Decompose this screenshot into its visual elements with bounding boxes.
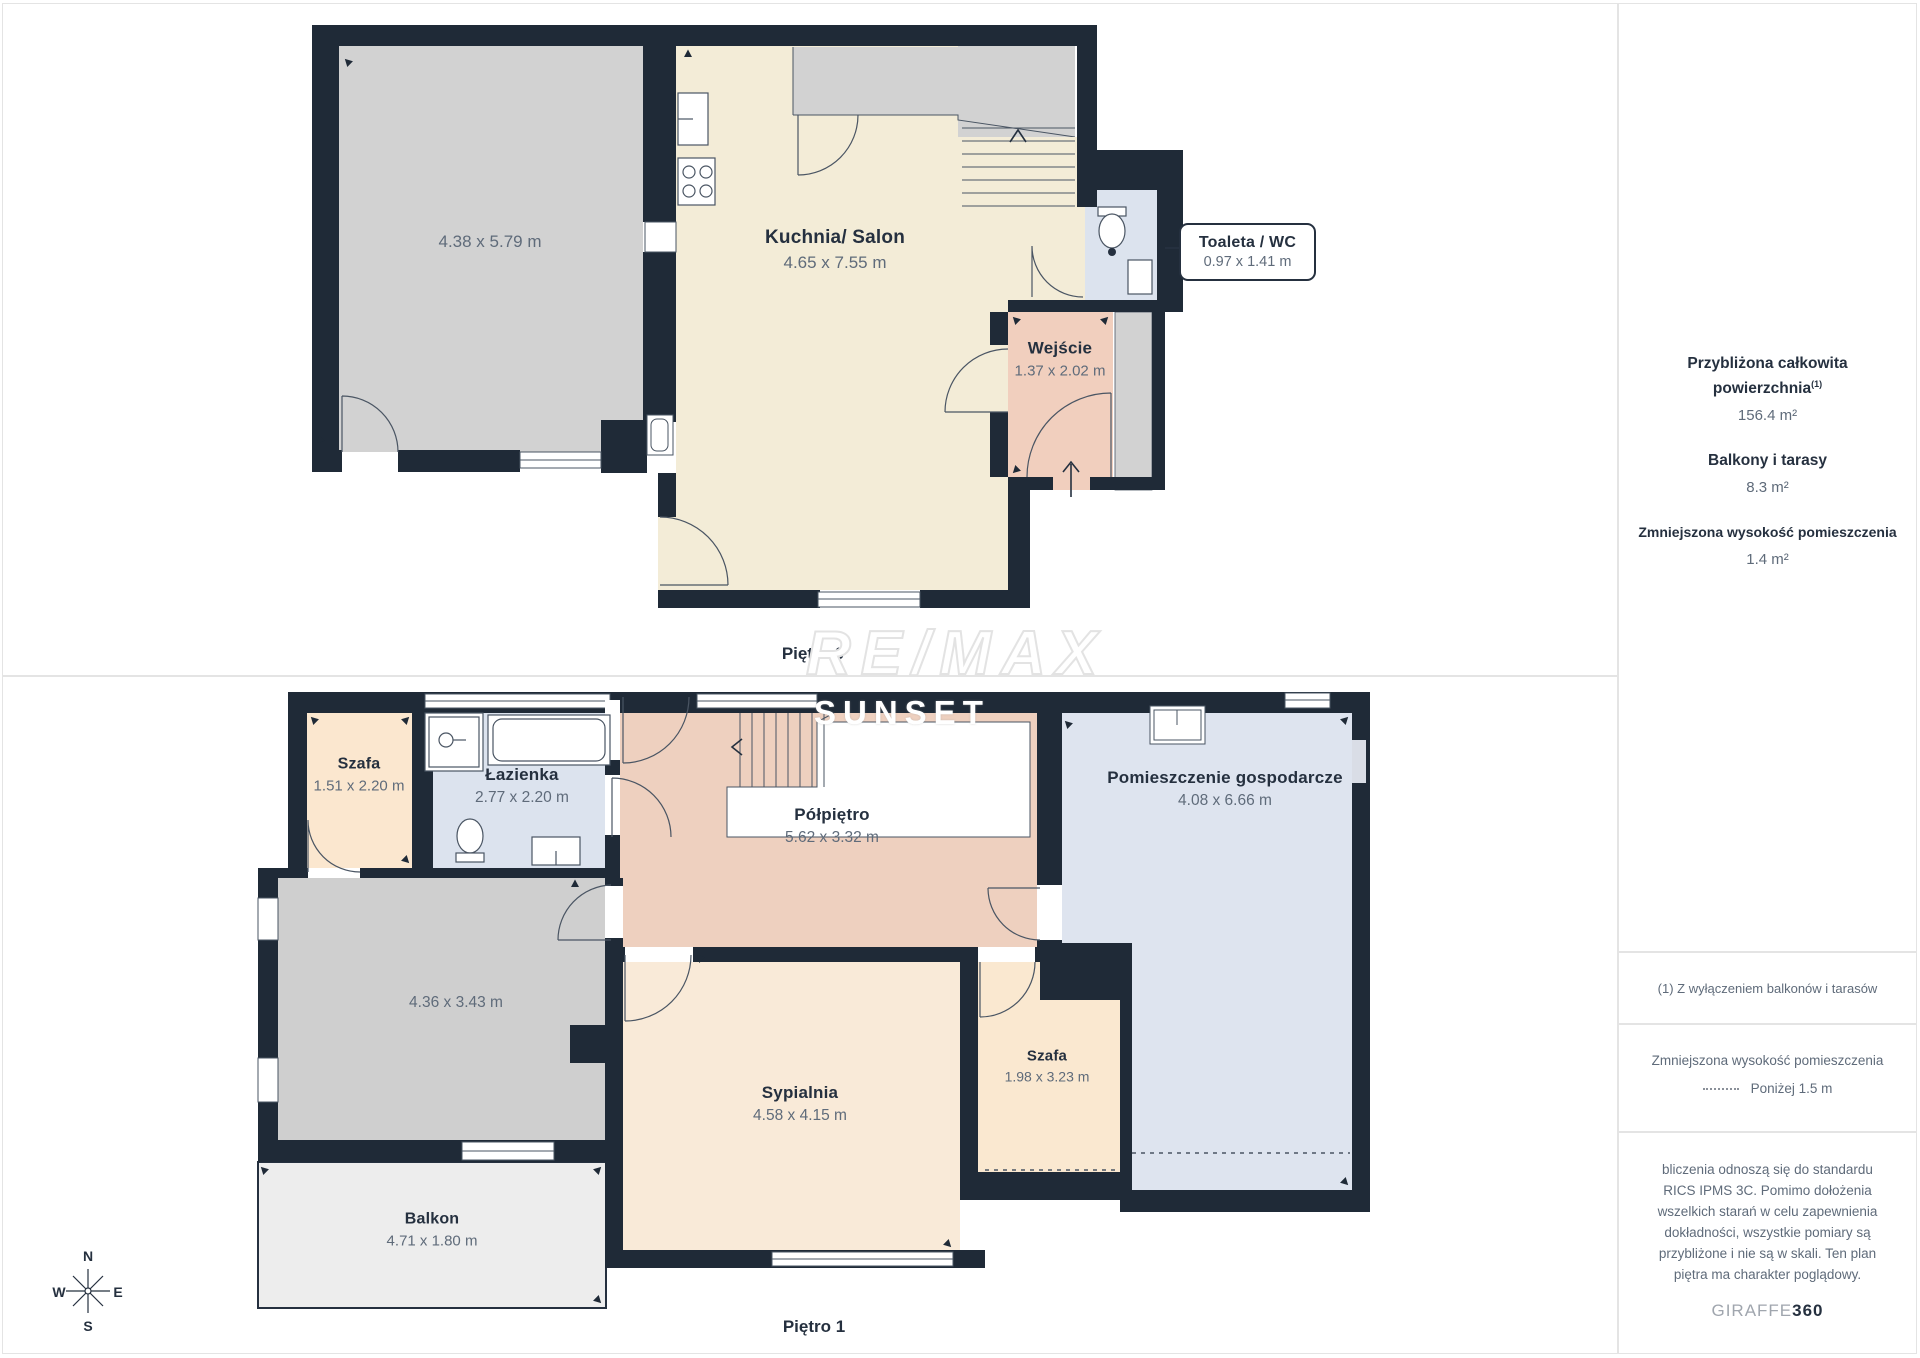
room-dims: 1.98 x 3.23 m [1005,1069,1090,1085]
room-label-entry: Wejście 1.37 x 2.02 m [1015,339,1106,380]
reduced-height-heading: Zmniejszona wysokość pomieszczenia [1619,522,1916,543]
room-label-closet1: Szafa 1.51 x 2.20 m [314,756,405,795]
footnote-marker: (1) [1811,379,1822,389]
room-label-gray0: 4.38 x 5.79 m [438,232,541,252]
room-name: Kuchnia/ Salon [765,227,905,249]
legend-heading: Zmniejszona wysokość pomieszczenia [1619,1053,1916,1068]
compass-n: N [83,1248,93,1264]
room-name: Wejście [1015,339,1106,359]
total-area-value: 156.4 m² [1619,407,1916,424]
room-dims: 5.62 x 3.32 m [785,829,879,847]
total-area-heading: Przybliżona całkowita powierzchnia(1) [1619,353,1916,399]
balconies-value: 8.3 m² [1619,479,1916,496]
room-name: Szafa [314,756,405,774]
room-dims: 4.58 x 4.15 m [753,1107,847,1125]
room-dims: 4.65 x 7.55 m [765,253,905,273]
room-label-balcony: Balkon 4.71 x 1.80 m [387,1211,478,1250]
floor0-panel [2,3,1618,676]
balconies-heading: Balkony i tarasy [1619,450,1916,471]
room-dims: 0.97 x 1.41 m [1204,254,1292,270]
room-name: Sypialnia [753,1083,847,1103]
giraffe360-logo-name: GIRAFFE [1711,1301,1792,1320]
room-name: Toaleta / WC [1199,234,1296,252]
disclaimer-text: bliczenia odnoszą się do standardu RICS … [1619,1159,1916,1285]
sidebar-disclaimer-section: bliczenia odnoszą się do standardu RICS … [1618,1132,1917,1354]
wc-callout: Toaleta / WC 0.97 x 1.41 m [1179,223,1316,281]
reduced-height-value: 1.4 m² [1619,551,1916,568]
legend-value: Poniżej 1.5 m [1751,1081,1833,1096]
giraffe360-logo-number: 360 [1792,1301,1823,1320]
sidebar-note-section: (1) Z wyłączeniem balkonów i tarasów [1618,952,1917,1024]
room-dims: 4.36 x 3.43 m [409,994,503,1012]
room-dims: 1.51 x 2.20 m [314,778,405,795]
compass-w: W [52,1284,65,1300]
room-dims: 2.77 x 2.20 m [475,789,569,807]
giraffe360-logo: GIRAFFE360 [1619,1301,1916,1321]
room-label-closet2: Szafa 1.98 x 3.23 m [1005,1048,1090,1085]
room-label-bathroom: Łazienka 2.77 x 2.20 m [475,765,569,807]
footnote-text: (1) Z wyłączeniem balkonów i tarasów [1619,981,1916,996]
sidebar-legend-section: Zmniejszona wysokość pomieszczenia Poniż… [1618,1024,1917,1132]
room-label-utility: Pomieszczenie gospodarcze 4.08 x 6.66 m [1107,768,1343,810]
room-label-gray1: 4.36 x 3.43 m [409,994,503,1012]
room-dims: 4.08 x 6.66 m [1107,792,1343,810]
floor1-title: Piętro 1 [783,1317,845,1337]
floor0-title: Piętro 0 [782,644,844,664]
room-label-bedroom: Sypialnia 4.58 x 4.15 m [753,1083,847,1125]
floor1-panel [2,676,1618,1354]
sidebar-area-section: Przybliżona całkowita powierzchnia(1) 15… [1618,3,1917,952]
room-name: Pomieszczenie gospodarcze [1107,768,1343,788]
room-name: Łazienka [475,765,569,785]
reduced-height-dashed-line-icon [1703,1088,1739,1090]
compass-e: E [113,1284,122,1300]
room-dims: 4.38 x 5.79 m [438,232,541,252]
room-label-kitchen: Kuchnia/ Salon 4.65 x 7.55 m [765,227,905,273]
room-dims: 4.71 x 1.80 m [387,1233,478,1250]
compass-s: S [83,1318,92,1334]
room-label-landing: Półpiętro 5.62 x 3.32 m [785,805,879,847]
room-name: Półpiętro [785,805,879,825]
floorplan-page: 4.38 x 5.79 m Kuchnia/ Salon 4.65 x 7.55… [0,0,1920,1358]
room-name: Szafa [1005,1048,1090,1065]
room-name: Balkon [387,1211,478,1229]
room-dims: 1.37 x 2.02 m [1015,363,1106,380]
